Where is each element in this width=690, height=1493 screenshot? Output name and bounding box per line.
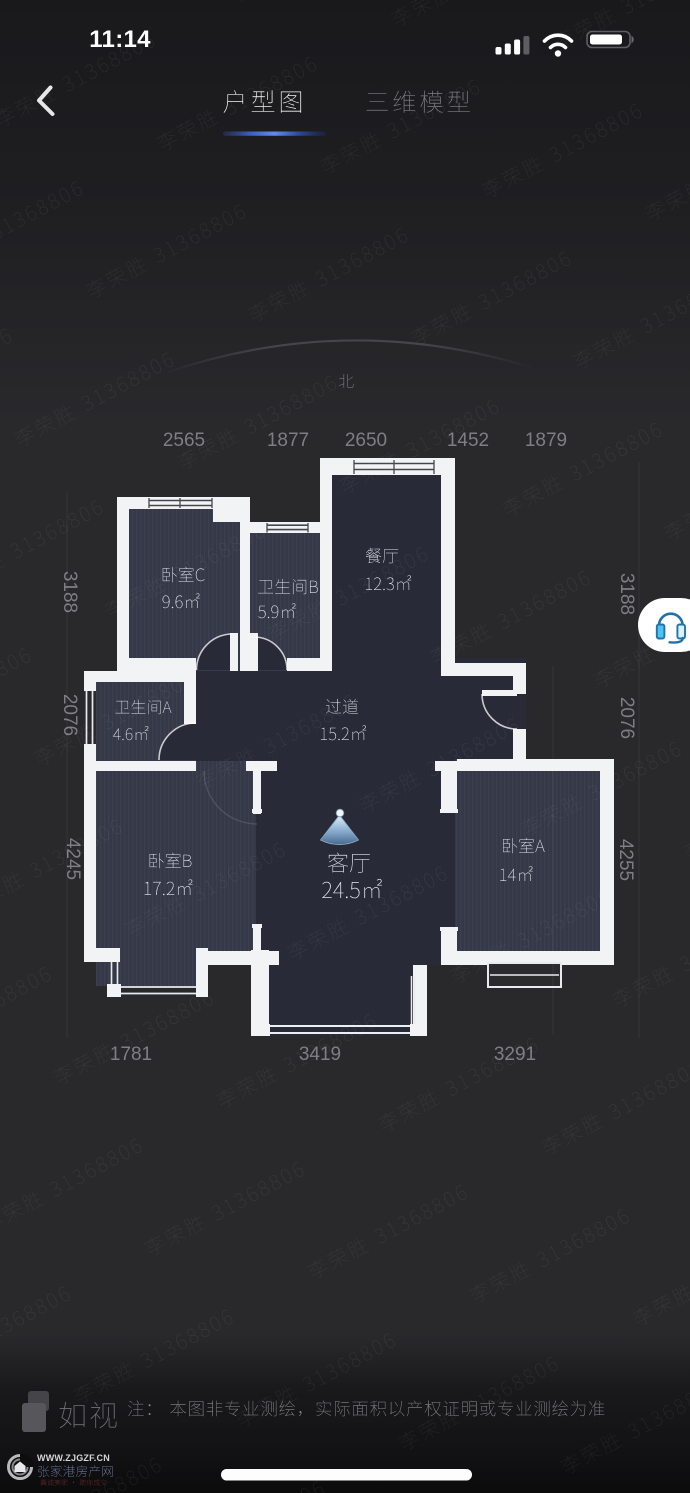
svg-text:4245: 4245 (62, 838, 83, 880)
svg-text:3419: 3419 (299, 1044, 341, 1065)
svg-text:2076: 2076 (59, 694, 80, 736)
svg-text:WWW.ZJGZF.CN: WWW.ZJGZF.CN (37, 1453, 110, 1463)
svg-text:1879: 1879 (525, 430, 567, 451)
svg-text:2565: 2565 (163, 430, 205, 451)
svg-text:2650: 2650 (345, 430, 387, 451)
svg-text:2076: 2076 (616, 697, 637, 739)
svg-text:1452: 1452 (447, 430, 489, 451)
svg-text:3188: 3188 (59, 571, 80, 613)
svg-text:1877: 1877 (267, 430, 309, 451)
svg-text:4255: 4255 (615, 839, 636, 881)
svg-text:3188: 3188 (616, 573, 637, 615)
